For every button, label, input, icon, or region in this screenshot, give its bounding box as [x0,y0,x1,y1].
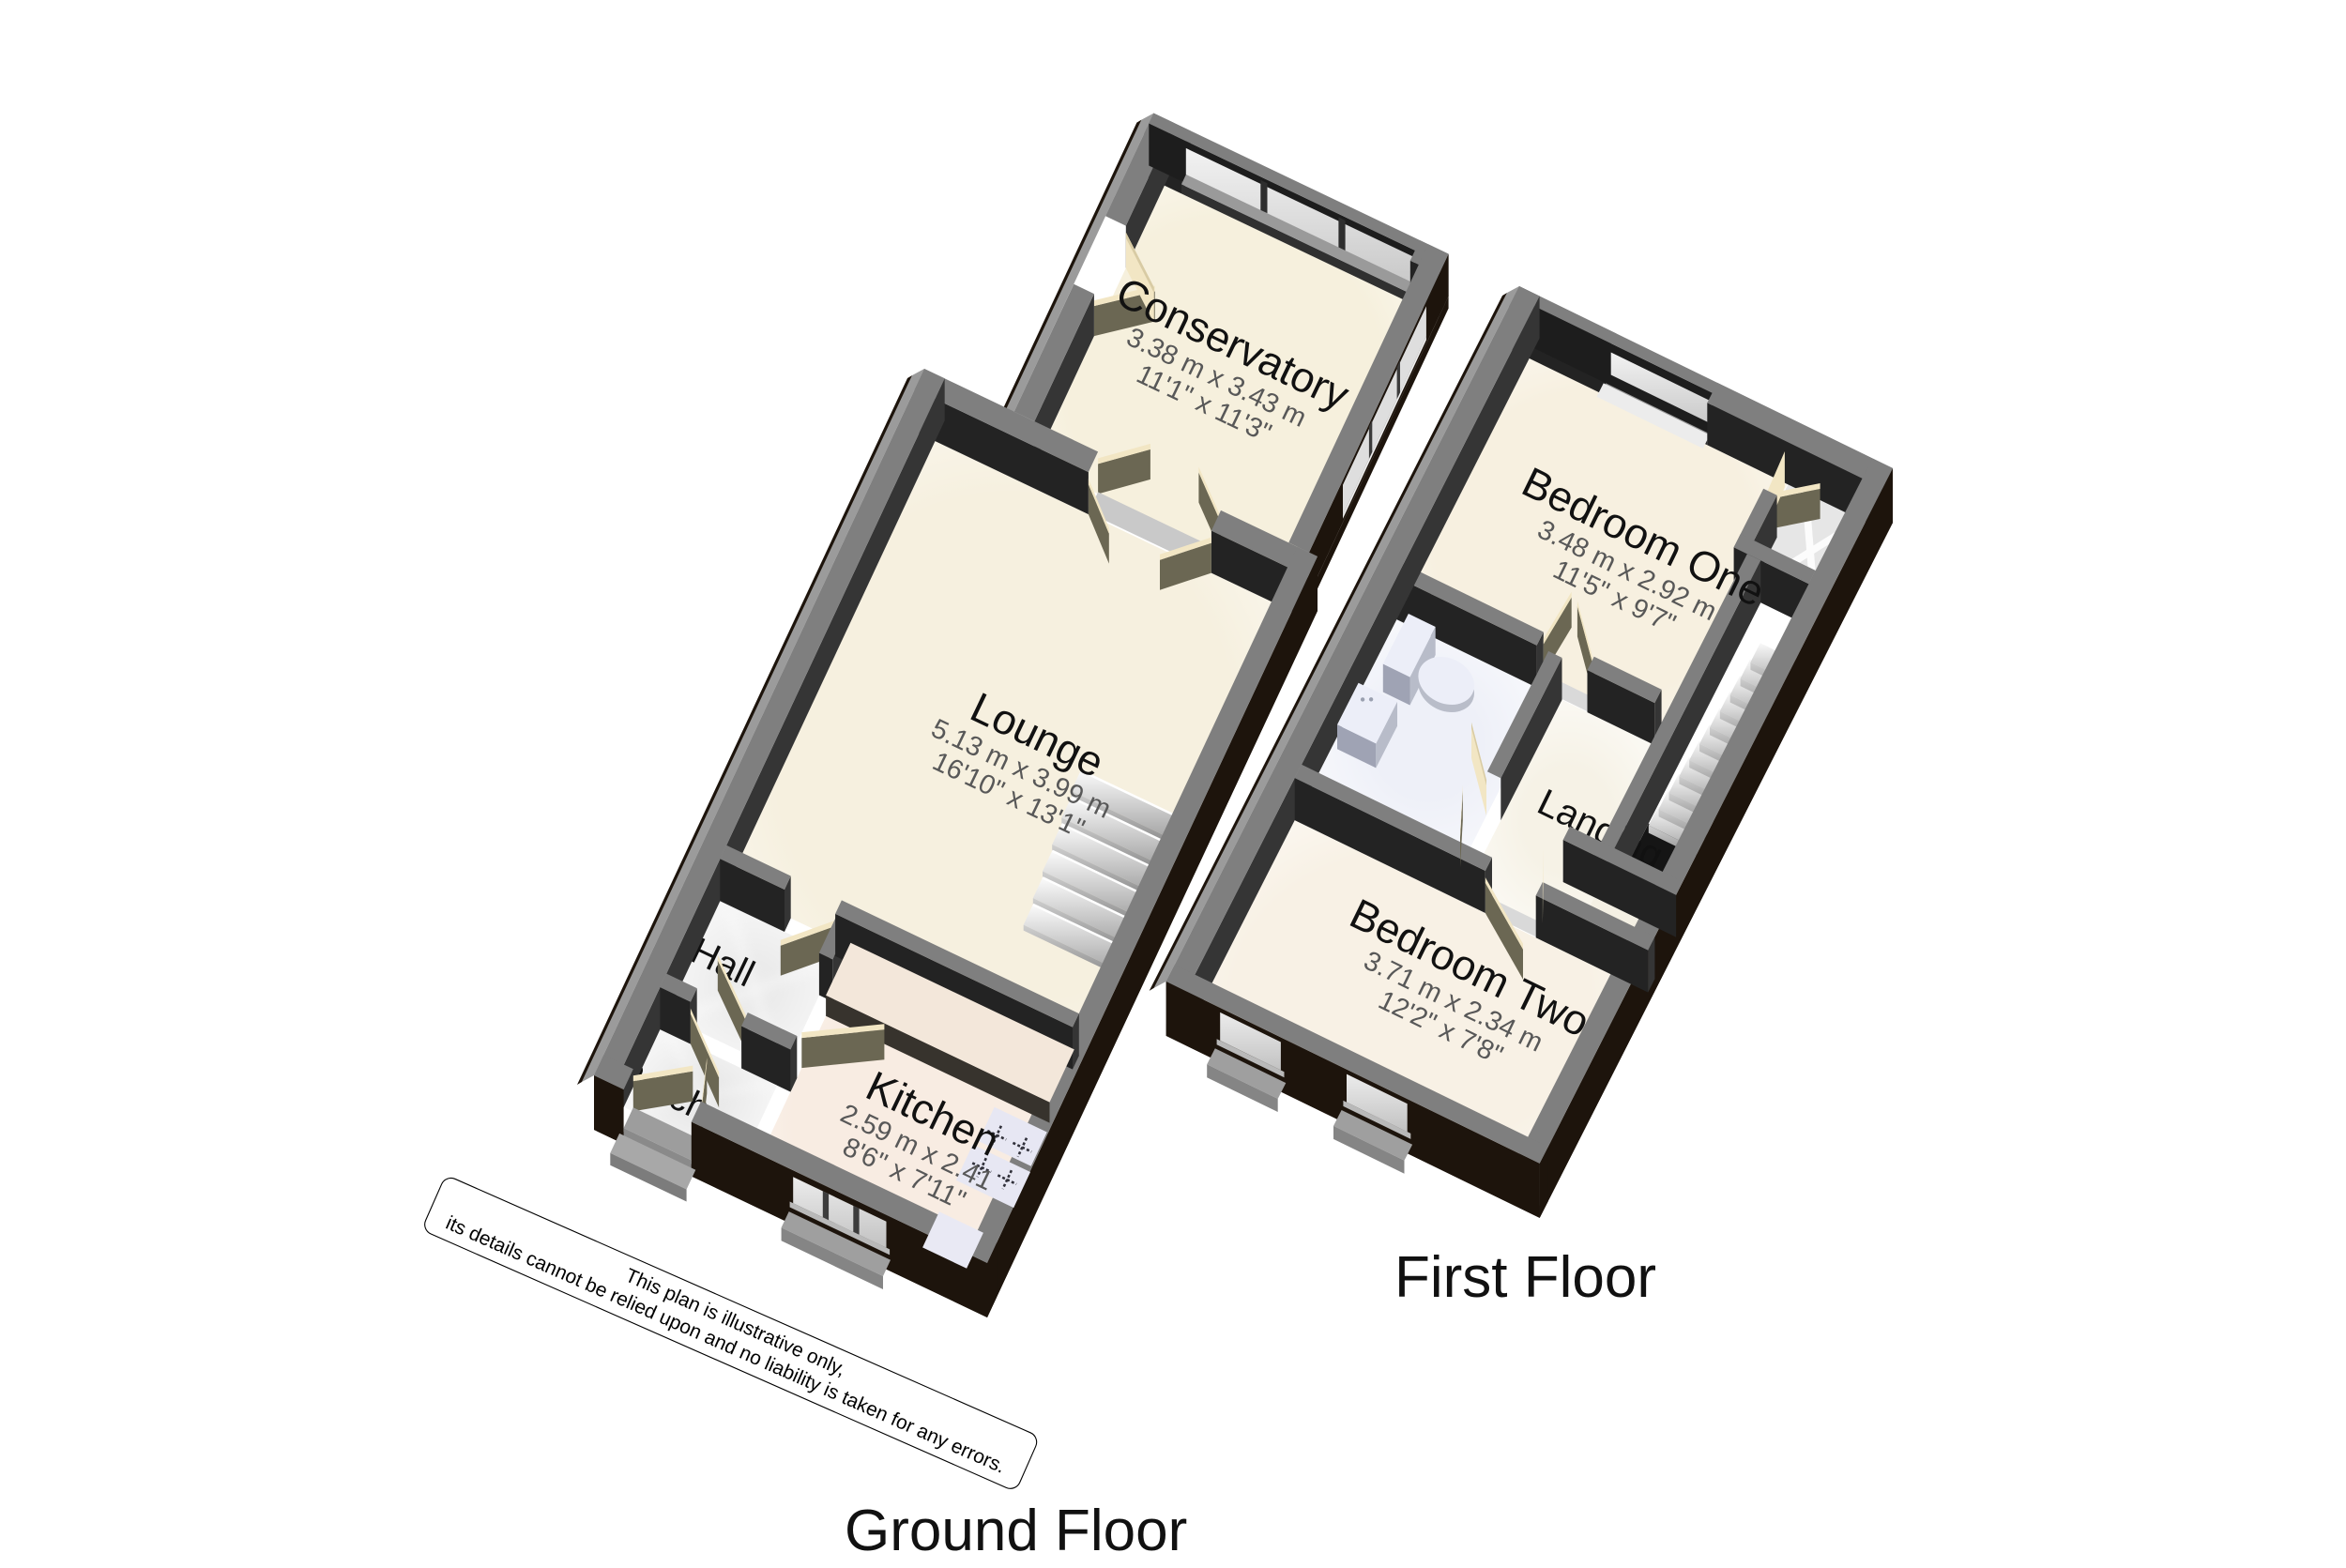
svg-text:Ground Floor: Ground Floor [845,1499,1187,1563]
svg-text:First Floor: First Floor [1394,1245,1656,1310]
